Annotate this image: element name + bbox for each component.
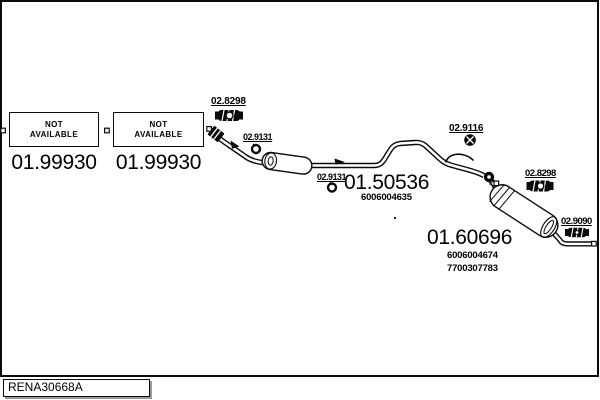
not-available-box-1: NOT AVAILABLE [9,112,99,147]
part-number-hanger-mid[interactable]: 02.9131 [317,172,346,182]
oe-number: 6006004635 [361,193,412,203]
parts-diagram-page: { "colors": { "ink": "#0a0a0a", "paper":… [0,0,600,400]
not-available-line: NOT [149,120,167,130]
drawing-code-box: RENA30668A [3,379,150,397]
connector-square [207,127,212,132]
exhaust-diagram [0,0,600,378]
part-number-nut-mid[interactable]: 02.9116 [449,124,483,134]
part-number-clamp-rear[interactable]: 02.8298 [525,169,556,179]
not-available-line: AVAILABLE [30,130,78,140]
connector-square [592,241,597,246]
rubber-mount-icon [484,172,494,182]
part-number-clamp-front[interactable]: 02.8298 [211,97,246,107]
not-available-line: NOT [45,120,63,130]
part-number-front-section-1[interactable]: 01.99930 [9,152,99,173]
center-silencer-drawing [261,151,313,175]
print-dot [394,217,396,219]
part-number-front-section-2[interactable]: 01.99930 [113,152,204,173]
oe-number: 6006004674 [447,251,498,261]
part-number-rear-silencer[interactable]: 01.60696 [427,227,512,248]
connector-square [1,128,6,133]
hanger-bracket [446,154,474,162]
pipe-clamp-icon [215,110,243,121]
pipe-clamp-icon [527,181,554,192]
nut-icon [464,134,476,146]
hanger-ring-icon [252,144,260,153]
connector-square [105,128,110,133]
part-number-hanger-front[interactable]: 02.9131 [243,132,272,142]
part-number-clamp-tail[interactable]: 02.9090 [561,217,592,227]
drawing-code: RENA30668A [8,380,83,394]
part-number-center-silencer[interactable]: 01.50536 [344,172,429,193]
not-available-box-2: NOT AVAILABLE [113,112,204,147]
not-available-line: AVAILABLE [134,130,182,140]
tail-clamp-icon [565,228,589,238]
oe-number: 7700307783 [447,264,498,274]
flow-arrow-icon [231,141,240,149]
hanger-ring-icon [328,182,336,191]
connector-square [494,181,499,186]
